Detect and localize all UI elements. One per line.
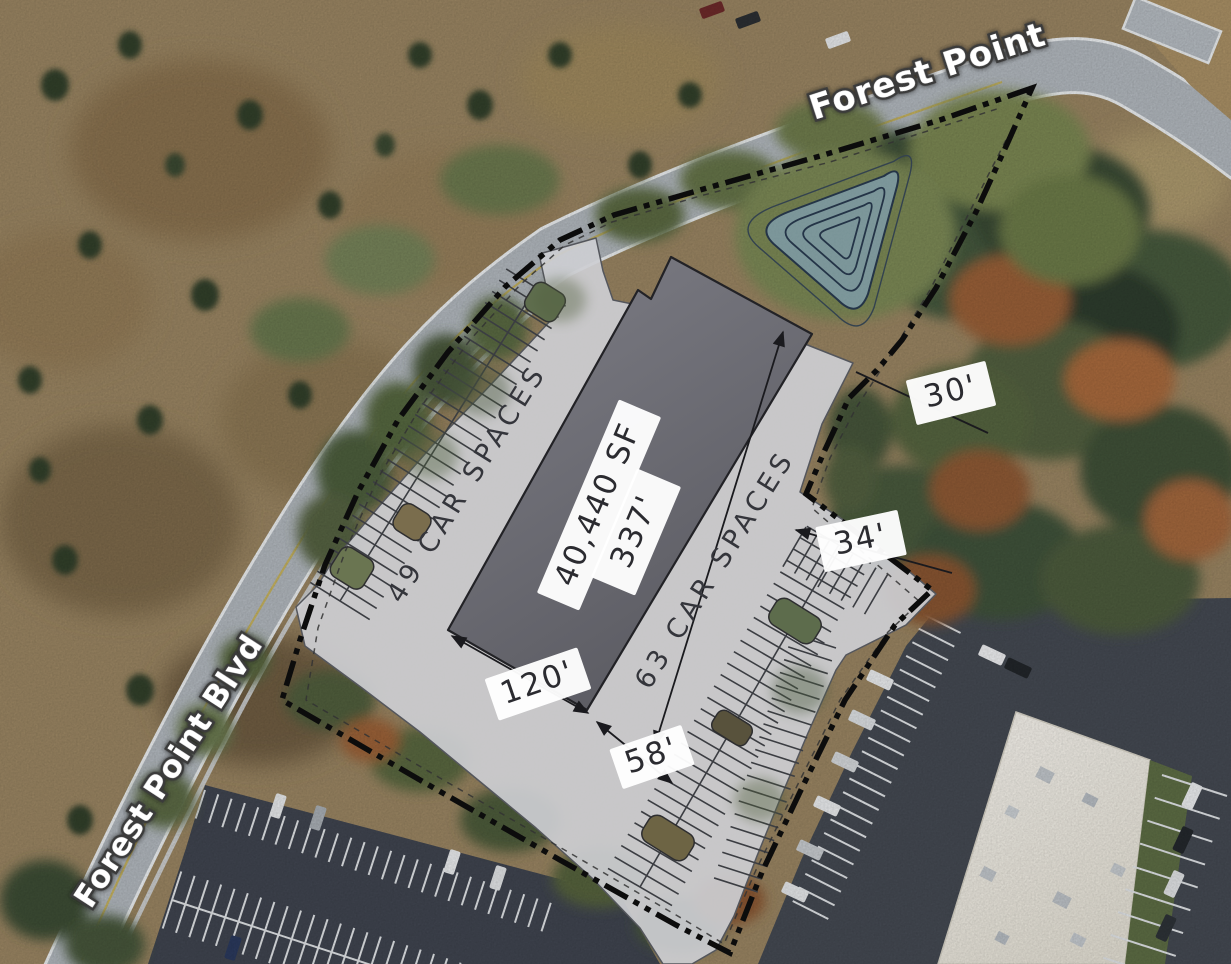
- site-plan-canvas: 49 CAR SPACES 63 CAR SPACES 40,440 SF 33…: [0, 0, 1231, 964]
- site-plan-page: 49 CAR SPACES 63 CAR SPACES 40,440 SF 33…: [0, 0, 1231, 964]
